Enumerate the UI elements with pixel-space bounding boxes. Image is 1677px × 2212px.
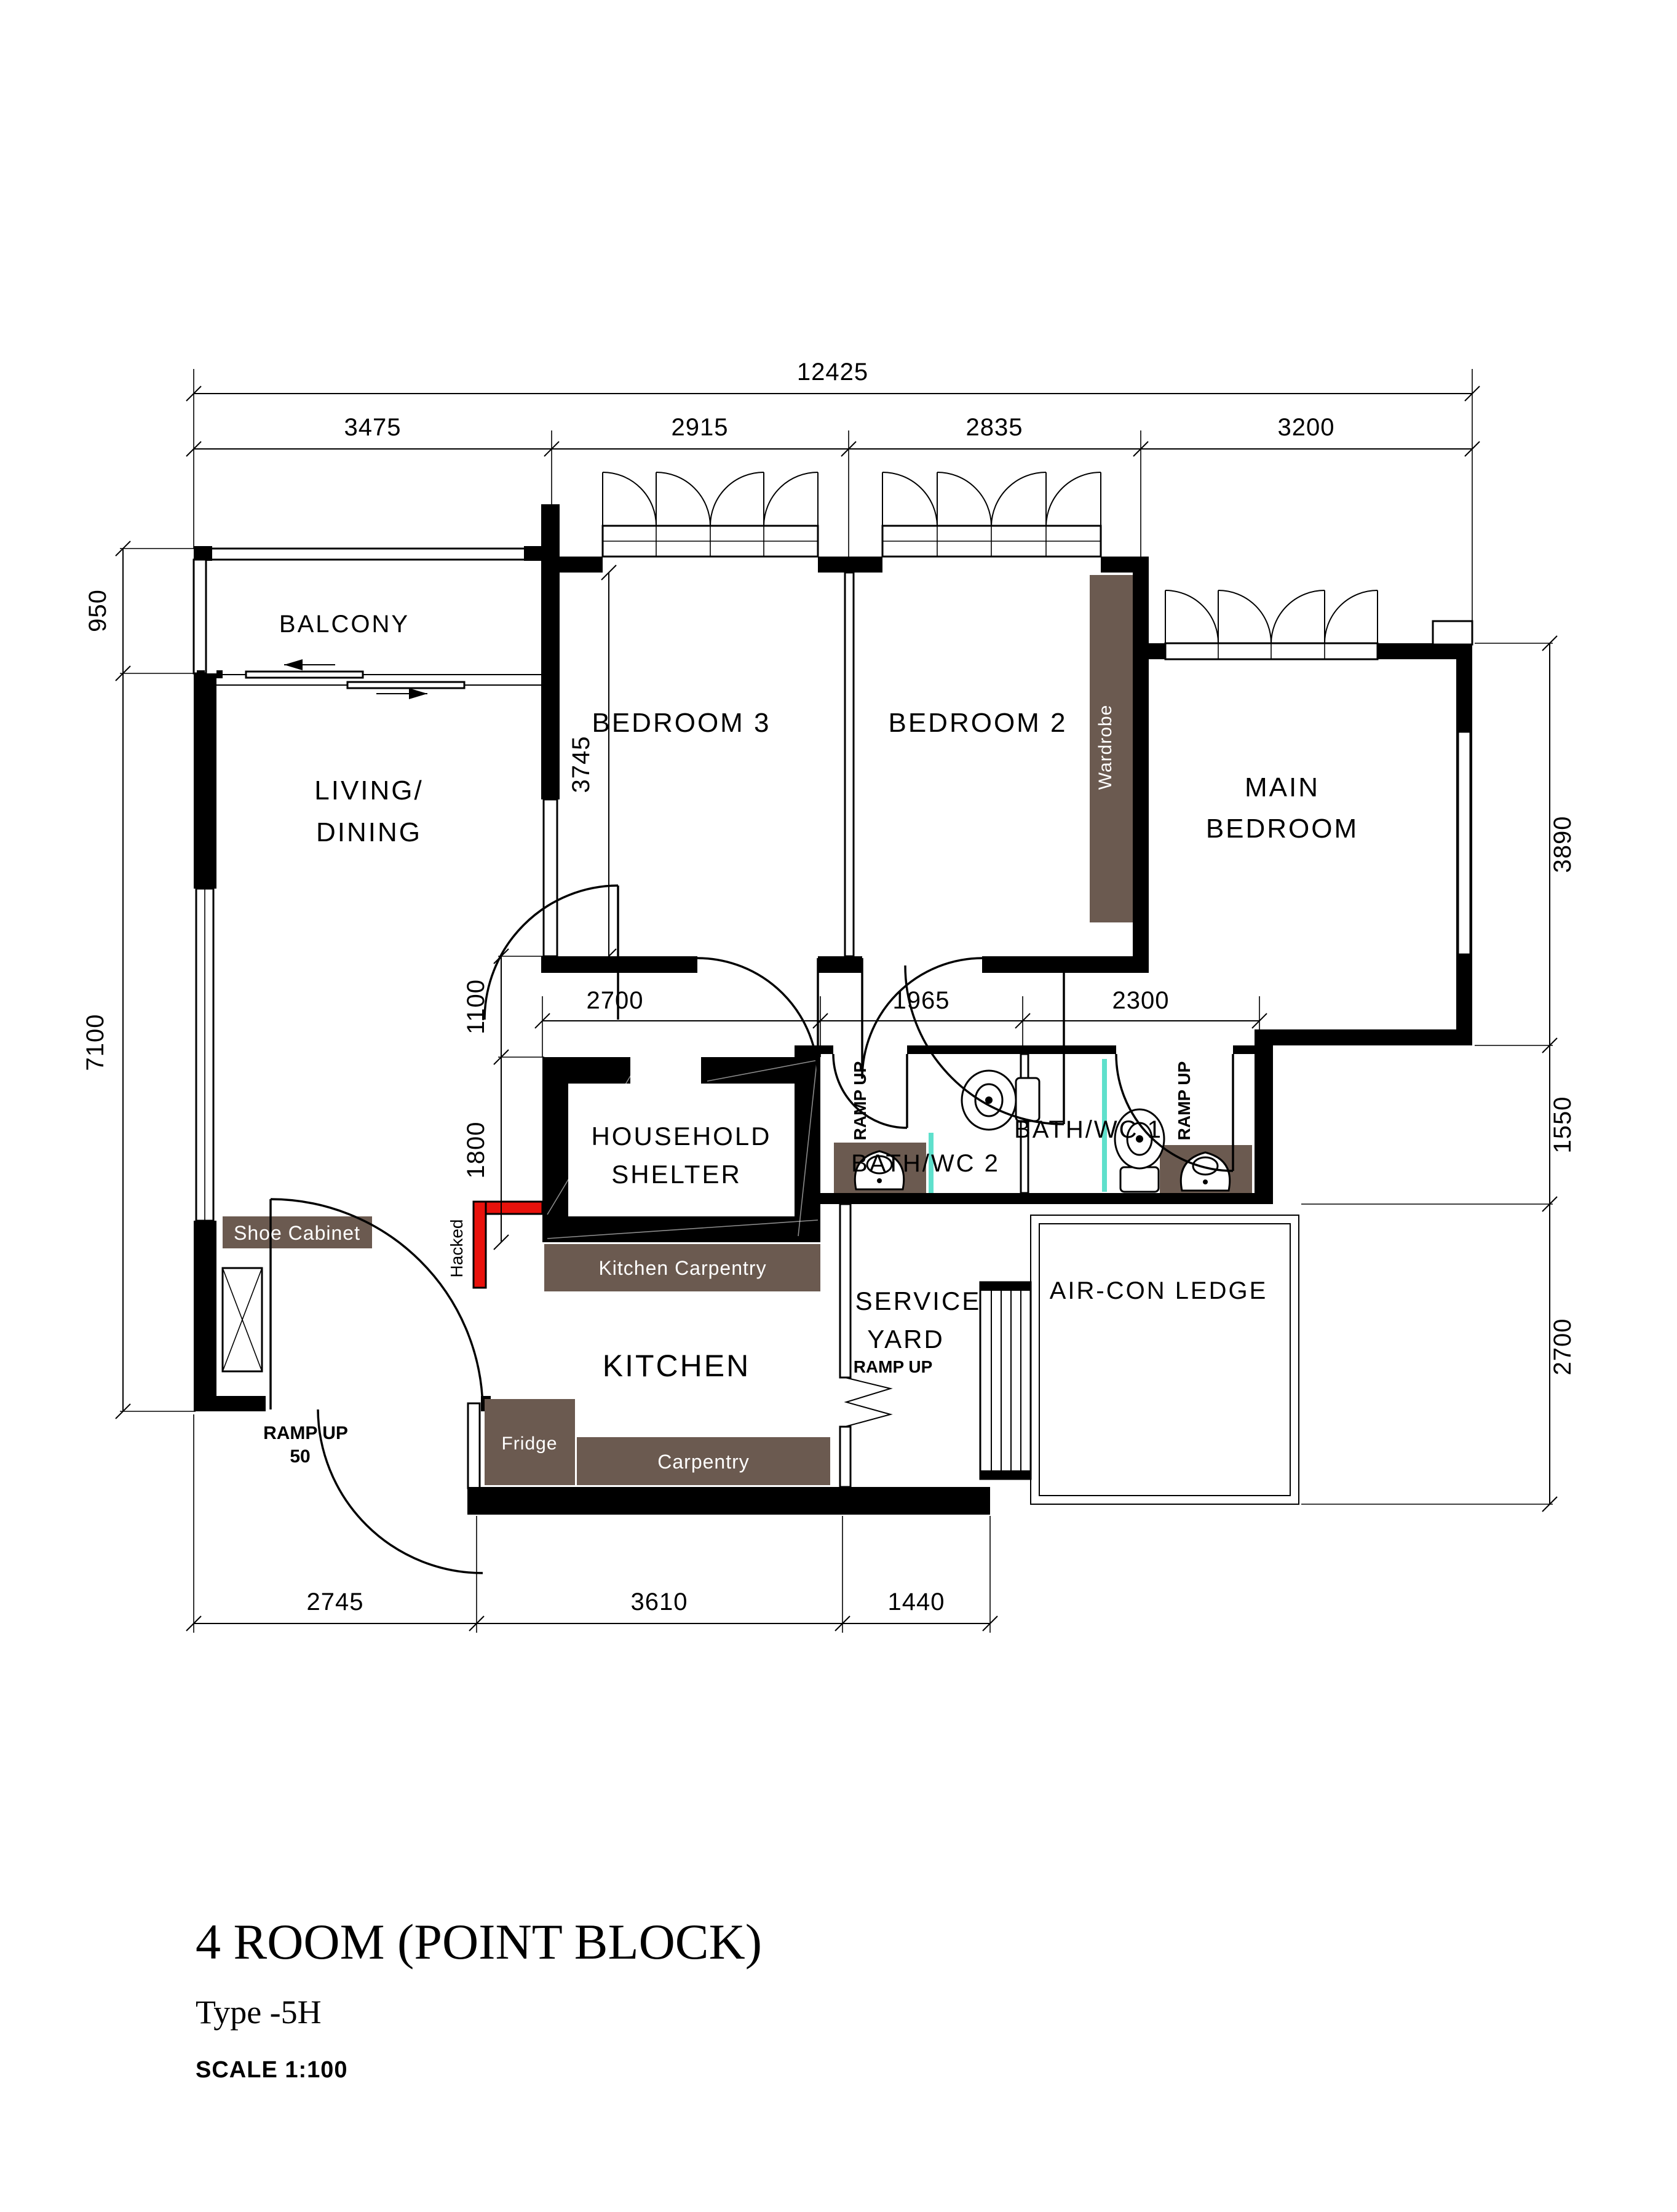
entry-ramp-up-1: RAMP UP	[263, 1423, 348, 1443]
bedroom3-label: BEDROOM 3	[592, 708, 771, 738]
service-yard-label-1: SERVICE	[855, 1286, 981, 1315]
dim-inner-1965: 1965	[893, 987, 950, 1014]
bedroom2-window	[882, 472, 1101, 557]
bath1-label: BATH/WC 1	[1014, 1116, 1163, 1143]
fridge-label: Fridge	[501, 1433, 557, 1454]
dim-bedroom3-depth: 3745	[568, 736, 595, 793]
hacked-wall	[474, 1202, 542, 1288]
aircon-ledge-structure	[980, 1215, 1299, 1504]
dim-right-2: 1550	[1549, 1096, 1576, 1154]
entry-ramp-up-2: 50	[290, 1446, 310, 1467]
bath2-door	[833, 1054, 907, 1128]
sliding-door-arrows	[284, 659, 427, 699]
bedroom-divider-wall	[845, 573, 854, 956]
dim-inner-2700: 2700	[587, 987, 644, 1014]
dim-right-3: 2700	[1549, 1318, 1576, 1376]
dim-top-2: 2915	[672, 414, 729, 441]
dim-left-2: 7100	[82, 1014, 109, 1071]
dim-left-1: 950	[84, 589, 111, 632]
dim-overall-width: 12425	[797, 359, 868, 386]
aircon-ledge-label: AIR-CON LEDGE	[1050, 1277, 1268, 1304]
dim-bottom-2: 3610	[631, 1588, 688, 1615]
dim-top-1: 3475	[344, 414, 402, 441]
floorplan-sheet: 12425 3475 2915 2835 3200 950 7100 3890 …	[0, 0, 1677, 2212]
dim-inner-1800: 1800	[462, 1122, 490, 1179]
living-label-2: DINING	[316, 817, 422, 847]
shelter-label-2: SHELTER	[611, 1160, 742, 1189]
carpentry-label: Carpentry	[657, 1451, 750, 1473]
kitchen-label: KITCHEN	[603, 1349, 750, 1383]
service-yard-ramp-up: RAMP UP	[854, 1357, 933, 1376]
dim-top-4: 3200	[1278, 414, 1335, 441]
plan-title: 4 ROOM (POINT BLOCK)	[196, 1914, 762, 1970]
main-bedroom-label-1: MAIN	[1245, 772, 1320, 803]
wardrobe-label: Wardrobe	[1095, 705, 1116, 790]
aircon-railing	[980, 1282, 1031, 1479]
dim-bottom-3: 1440	[888, 1588, 945, 1615]
shelter-label-1: HOUSEHOLD	[591, 1122, 771, 1151]
bath2-ramp-up: RAMP UP	[850, 1061, 870, 1141]
balcony-label: BALCONY	[279, 611, 410, 638]
bedroom2-door	[862, 958, 983, 1079]
bath1-ramp-up: RAMP UP	[1175, 1061, 1194, 1141]
bedroom3-window	[603, 472, 818, 557]
dim-top-3: 2835	[966, 414, 1023, 441]
dim-inner-1100: 1100	[462, 979, 490, 1034]
service-yard-label-2: YARD	[867, 1325, 945, 1354]
kitchen-carpentry-label: Kitchen Carpentry	[598, 1257, 766, 1279]
living-label-1: LIVING/	[314, 775, 424, 806]
dim-bottom-1: 2745	[307, 1588, 364, 1615]
plan-type: Type -5H	[196, 1994, 322, 2031]
main-bedroom-label-2: BEDROOM	[1206, 814, 1358, 844]
plan-scale: SCALE 1:100	[196, 2057, 348, 2083]
shoe-cabinet-label: Shoe Cabinet	[234, 1222, 360, 1244]
hacked-label: Hacked	[447, 1219, 466, 1278]
title-block: 4 ROOM (POINT BLOCK) Type -5H SCALE 1:10…	[196, 1914, 762, 2083]
dim-inner-2300: 2300	[1112, 987, 1170, 1014]
bedroom2-label: BEDROOM 2	[888, 708, 1067, 738]
dim-right-1: 3890	[1549, 816, 1576, 873]
bath2-label: BATH/WC 2	[851, 1150, 1000, 1177]
